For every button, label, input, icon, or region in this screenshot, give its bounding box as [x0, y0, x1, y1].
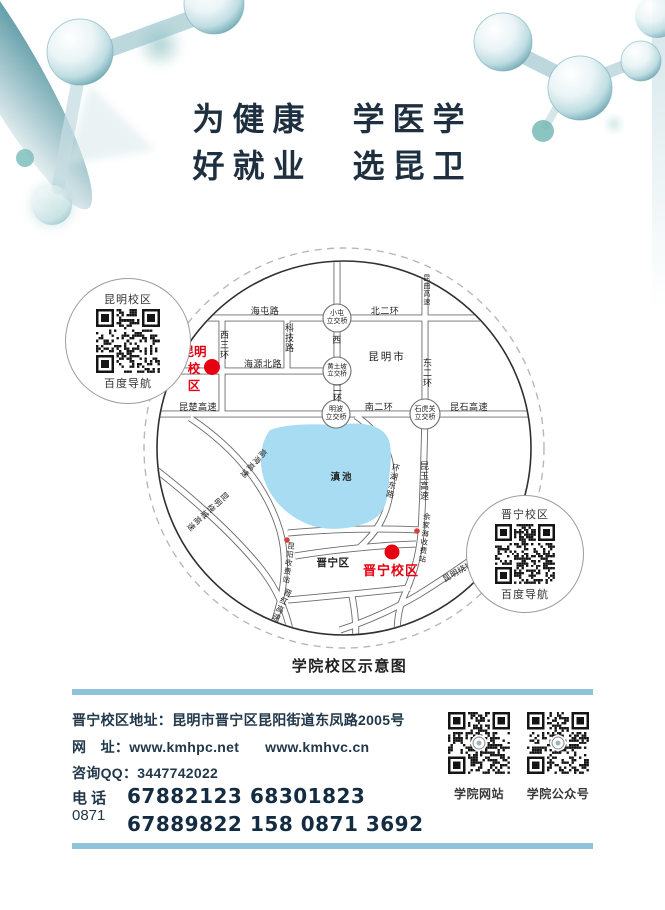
- road-label-haitun: 海屯路: [251, 307, 280, 317]
- road-label-north-2nd-ring: 北二环: [371, 307, 400, 317]
- jinning-campus-dot: [385, 545, 400, 560]
- road-label-haiyuan-north: 海源北路: [244, 360, 282, 370]
- qr-bubble-caption: 百度导航: [501, 586, 549, 602]
- label-shihuguan-interchange: 石虎关 立交桥: [415, 406, 436, 422]
- road-label-west-3rd-ring: 西三环: [218, 330, 228, 360]
- jinning-campus-qr-code: [495, 524, 555, 584]
- phone-number-2: 68301823: [250, 784, 365, 808]
- slogan-line-1: 为健康 学医学: [0, 96, 665, 143]
- jinning-campus-label: 晋宁校区: [363, 560, 419, 579]
- website-url-1: www.kmhpc.net: [129, 739, 239, 755]
- road-label-kunyu-expwy: 昆玉高速: [418, 461, 428, 501]
- phone-area-code: 0871: [72, 807, 105, 824]
- qr-bubble-title: 昆明校区: [104, 291, 152, 307]
- qr-bubble-title: 晋宁校区: [501, 506, 549, 522]
- road-label-second-ring: 二环: [331, 383, 341, 403]
- kunming-campus-qr-code: [96, 309, 160, 373]
- qq-line: 咨询QQ：3447742022: [72, 763, 218, 783]
- slogan: 为健康 学医学 好就业 选昆卫: [0, 96, 665, 190]
- map-caption: 学院校区示意图: [17, 655, 665, 676]
- yujiahai-toll-dot: [414, 528, 420, 534]
- campus-map: 海屯路 北二环 海源北路 昆楚高速 南二环 昆石高速 昆明市 西 滇池 晋宁区 …: [60, 238, 660, 658]
- jinning-campus-qr-bubble: 晋宁校区 百度导航: [466, 495, 584, 613]
- phone-number-3: 67889822: [127, 812, 242, 836]
- poster-page: 为健康 学医学 好就业 选昆卫: [0, 0, 665, 910]
- divider-bar-bottom: [72, 843, 593, 849]
- road-label-kunshi-expwy: 昆石高速: [450, 403, 488, 413]
- label-dianchi-lake: 滇池: [330, 473, 353, 483]
- label-xiaotun-interchange: 小屯 立交桥: [327, 310, 348, 326]
- wechat-qr-label: 学院公众号: [520, 785, 596, 802]
- road-label-east-2nd-ring: 东二环: [421, 358, 431, 388]
- phone-number-4: 158 0871 3692: [250, 812, 424, 836]
- website-qr-code: [448, 712, 510, 774]
- phone-label: 电 话: [72, 787, 106, 808]
- website-qr-label: 学院网站: [442, 785, 516, 802]
- address-line: 晋宁校区地址：昆明市晋宁区昆阳街道东凤路2005号: [72, 710, 405, 730]
- label-mingbo-interchange: 明波 立交桥: [326, 406, 347, 422]
- wechat-qr-code: [527, 712, 589, 774]
- road-label-kunchu-expwy: 昆楚高速: [179, 403, 217, 413]
- website-url-2: www.kmhvc.cn: [265, 739, 369, 755]
- slogan-line-2: 好就业 选昆卫: [0, 143, 665, 190]
- road-label-south-2nd-ring: 南二环: [365, 403, 394, 413]
- road-label-west: 西: [332, 336, 342, 346]
- phone-number-1: 67882123: [127, 784, 242, 808]
- road-label-keji: 科技路: [283, 323, 293, 353]
- label-huangtupo-interchange: 黄土坡 立交桥: [327, 364, 347, 379]
- label-jinning-district: 晋宁区: [317, 558, 350, 570]
- label-kunming-city: 昆明市: [368, 352, 406, 364]
- divider-bar-top: [72, 689, 593, 695]
- website-line: 网 址：www.kmhpc.netwww.kmhvc.cn: [72, 737, 369, 757]
- website-label: 网 址：: [72, 739, 129, 755]
- road-label-kunqu-expwy: 昆曲高速: [422, 274, 430, 306]
- qr-bubble-caption: 百度导航: [104, 375, 152, 391]
- kunming-campus-qr-bubble: 昆明校区 百度导航: [65, 278, 191, 404]
